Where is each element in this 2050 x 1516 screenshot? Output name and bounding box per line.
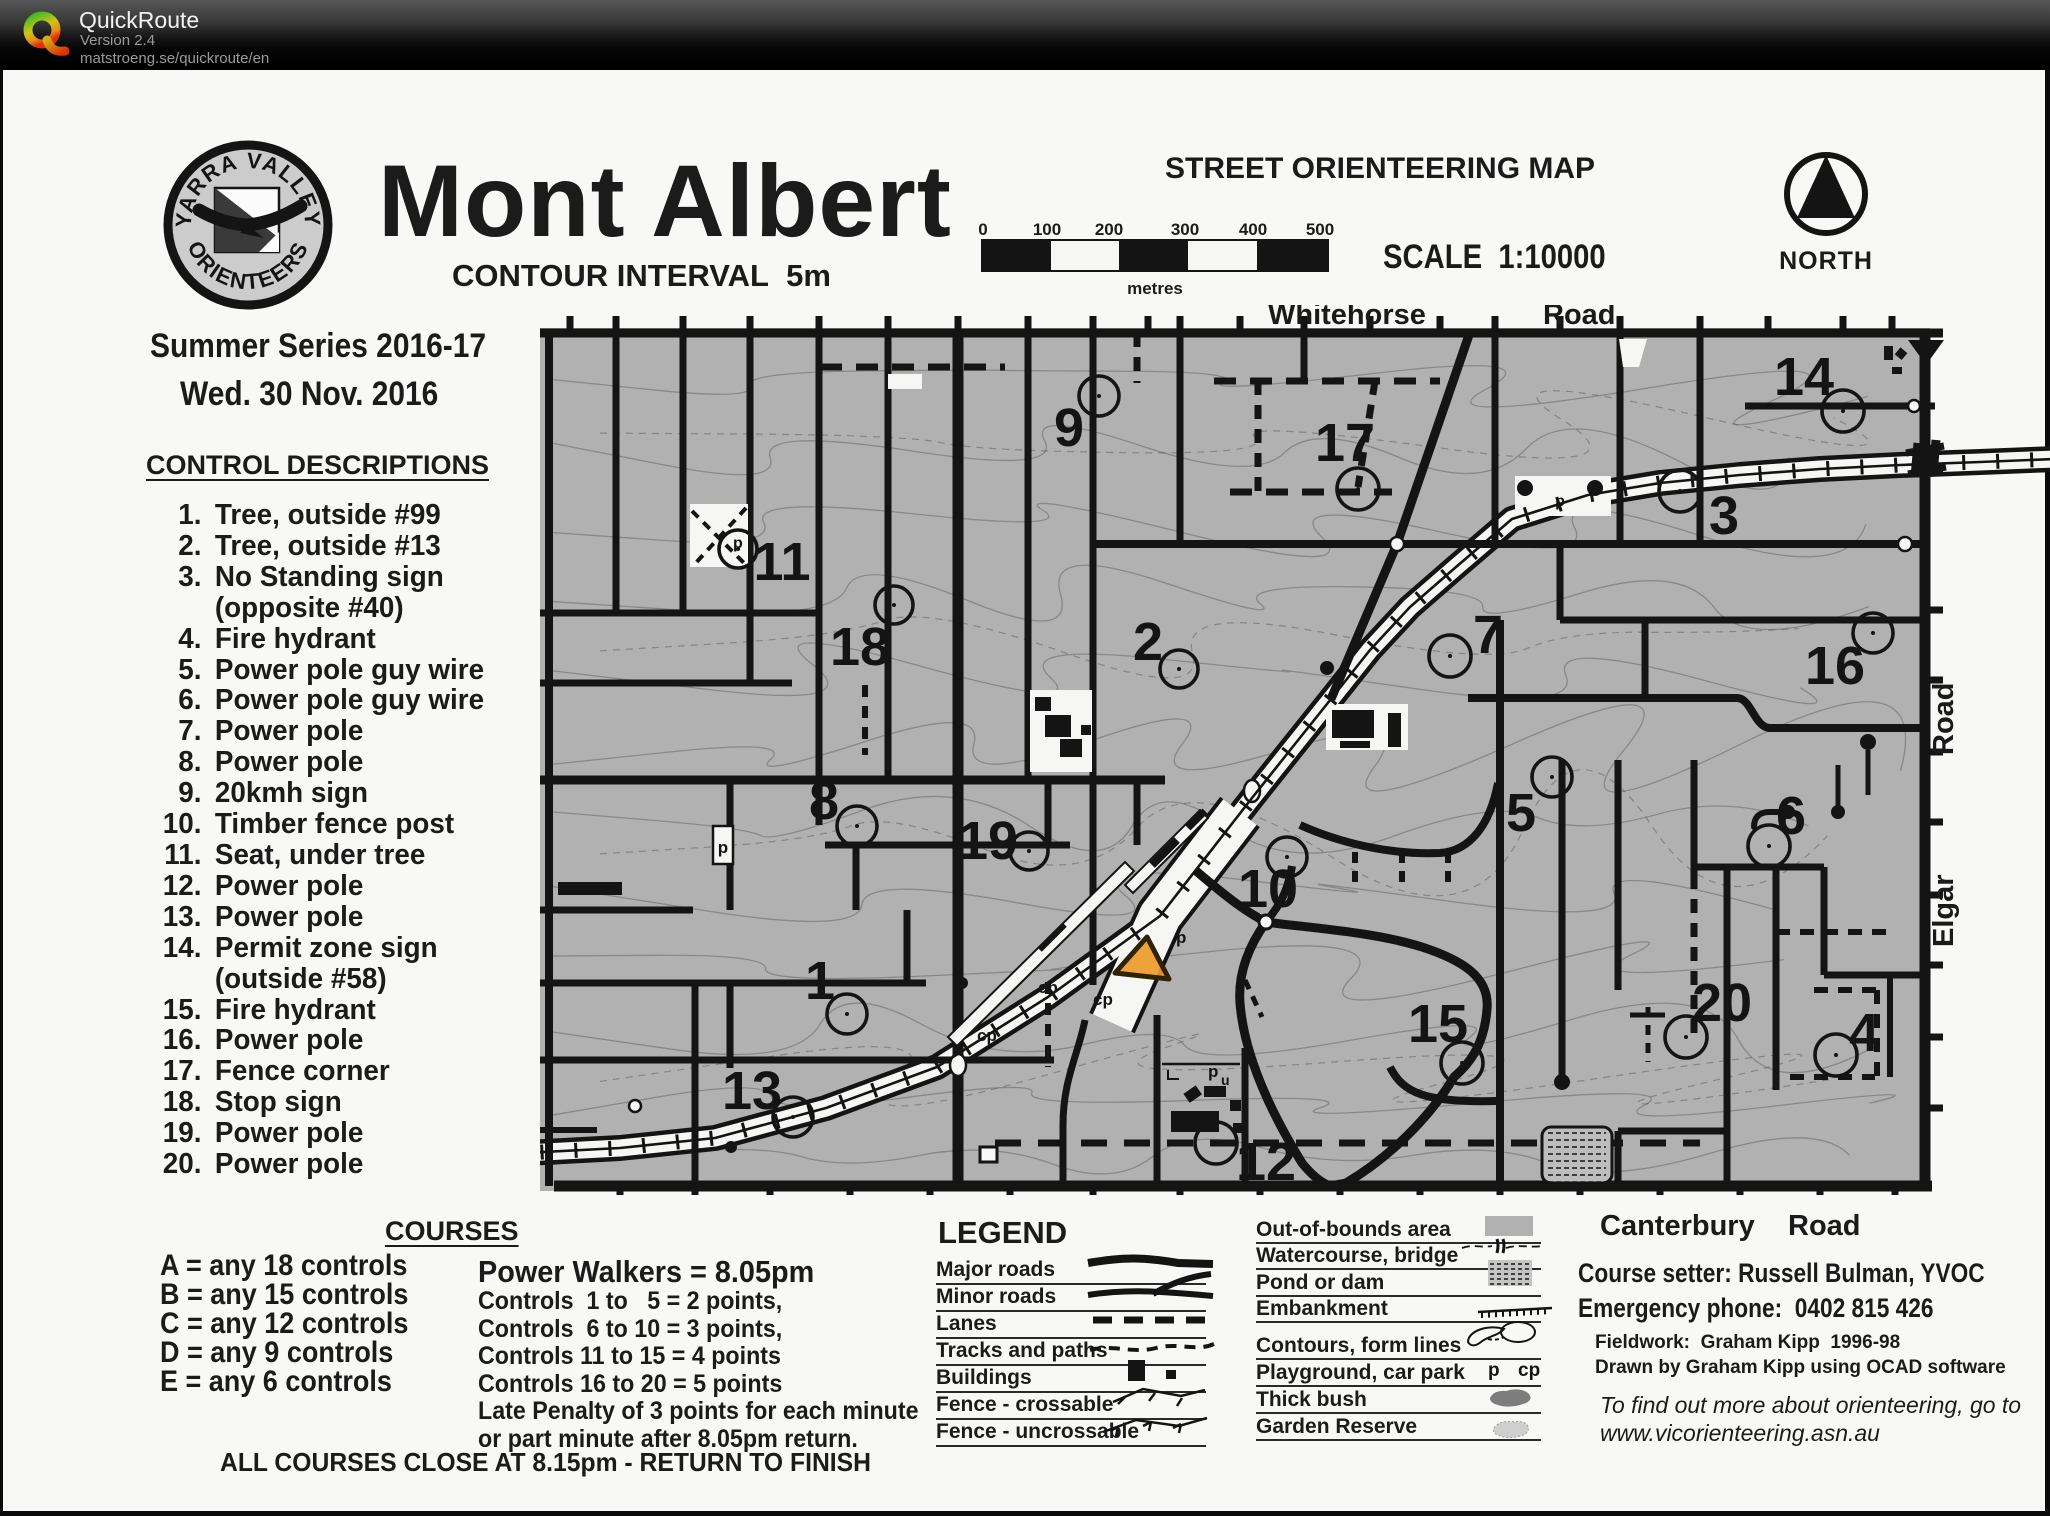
svg-text:16: 16 (1805, 636, 1865, 696)
svg-text:1: 1 (805, 951, 835, 1011)
svg-text:2: 2 (1133, 612, 1163, 672)
svg-text:u: u (1221, 1072, 1230, 1088)
svg-text:10: 10 (1238, 859, 1298, 919)
svg-text:Road: Road (1928, 683, 1960, 756)
svg-text:p: p (1488, 1360, 1500, 1381)
svg-text:11: 11 (753, 532, 810, 592)
svg-text:p: p (1176, 928, 1186, 947)
svg-text:14: 14 (1774, 347, 1834, 407)
svg-text:18: 18 (830, 617, 890, 677)
svg-text:13: 13 (722, 1061, 782, 1121)
svg-text:15: 15 (1408, 994, 1468, 1054)
svg-text:Elgar: Elgar (1928, 874, 1960, 947)
svg-text:8: 8 (809, 771, 839, 831)
svg-text:7: 7 (1473, 605, 1503, 665)
svg-text:3: 3 (1709, 486, 1739, 546)
svg-text:19: 19 (958, 811, 1018, 871)
svg-text:500: 500 (1306, 220, 1334, 239)
svg-text:Road: Road (1543, 305, 1616, 331)
svg-text:200: 200 (1095, 220, 1123, 239)
svg-text:NORTH: NORTH (1780, 247, 1873, 275)
svg-text:p: p (1208, 1062, 1218, 1081)
svg-text:5: 5 (1506, 783, 1536, 843)
svg-text:Whitehorse: Whitehorse (1268, 305, 1426, 331)
svg-text:cp: cp (977, 1026, 997, 1045)
svg-text:6: 6 (1776, 786, 1806, 846)
svg-text:4: 4 (1849, 1003, 1879, 1063)
svg-text:metres: metres (1127, 279, 1183, 298)
svg-text:cp: cp (1518, 1360, 1540, 1381)
svg-text:17: 17 (1315, 413, 1375, 473)
svg-text:0: 0 (978, 220, 987, 239)
svg-text:cp: cp (1093, 990, 1113, 1009)
svg-text:cp: cp (1038, 978, 1058, 997)
svg-text:100: 100 (1033, 220, 1061, 239)
svg-text:9: 9 (1054, 398, 1084, 458)
svg-text:20: 20 (1692, 973, 1752, 1033)
svg-text:300: 300 (1171, 220, 1199, 239)
svg-text:400: 400 (1239, 220, 1267, 239)
svg-text:p: p (733, 535, 743, 552)
svg-text:12: 12 (1236, 1132, 1296, 1192)
svg-text:p: p (718, 838, 728, 857)
